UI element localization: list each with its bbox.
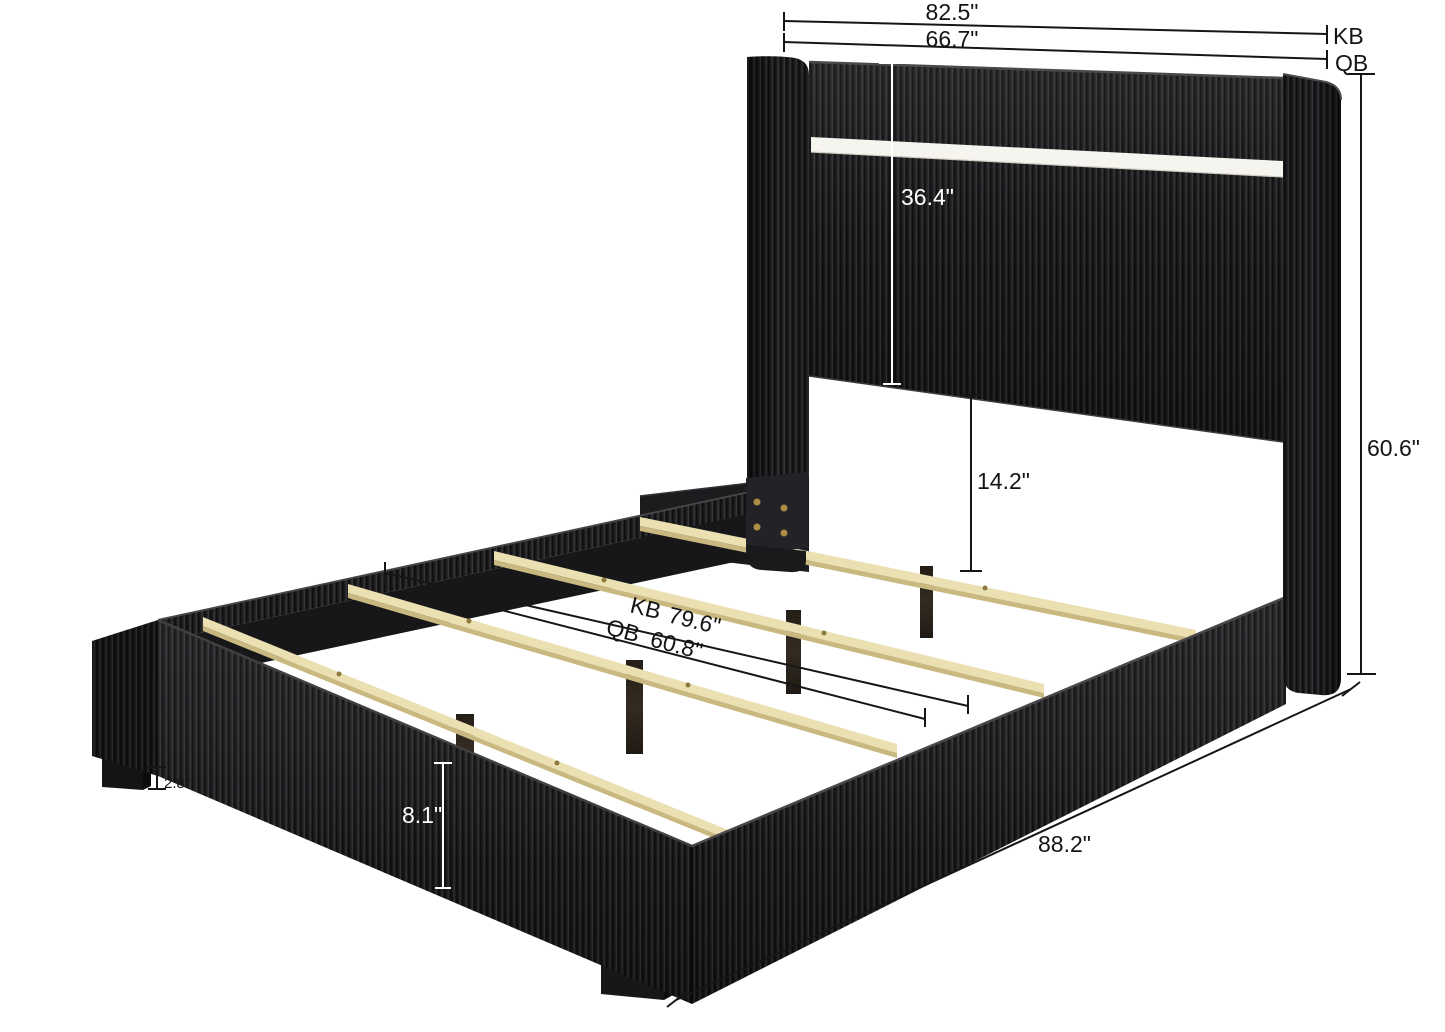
screw-icon bbox=[781, 505, 788, 512]
bed-dimension-diagram: 82.5" KB 66.7" QB 36.4" 60.6" 14.2" KB 7… bbox=[0, 0, 1445, 1032]
mounting-bracket bbox=[746, 472, 808, 554]
slat bbox=[494, 551, 1044, 698]
bed-illustration: 82.5" KB 66.7" QB 36.4" 60.6" 14.2" KB 7… bbox=[0, 0, 1445, 1032]
slat bbox=[640, 517, 1196, 644]
dim-top-width-king-line bbox=[784, 12, 1327, 44]
dim-clearance-label: 14.2" bbox=[977, 468, 1030, 494]
dim-overall-length-label: 88.2" bbox=[1038, 831, 1091, 857]
dim-overall-height-label: 60.6" bbox=[1367, 435, 1420, 461]
dim-top-width-queen-tag: QB bbox=[1335, 50, 1368, 76]
foot-rail bbox=[92, 620, 692, 1004]
headboard-right-wing bbox=[1283, 74, 1341, 695]
dim-overall-height-line bbox=[1347, 74, 1376, 674]
dim-top-width-queen-label: 66.7" bbox=[926, 26, 979, 52]
dim-leg-height-label: 2.8" bbox=[164, 775, 190, 792]
headboard bbox=[747, 56, 1283, 505]
dim-rail-height-label: 8.1" bbox=[402, 802, 442, 828]
screw-icon bbox=[754, 524, 761, 531]
screw-icon bbox=[781, 530, 788, 537]
side-rail-right bbox=[692, 597, 1286, 1004]
dim-top-width-king-tag: KB bbox=[1333, 23, 1364, 49]
dim-top-width-king-label: 82.5" bbox=[926, 0, 979, 25]
dim-headboard-panel-height-label: 36.4" bbox=[901, 184, 954, 210]
screw-icon bbox=[754, 499, 761, 506]
side-rail-left bbox=[158, 481, 800, 685]
